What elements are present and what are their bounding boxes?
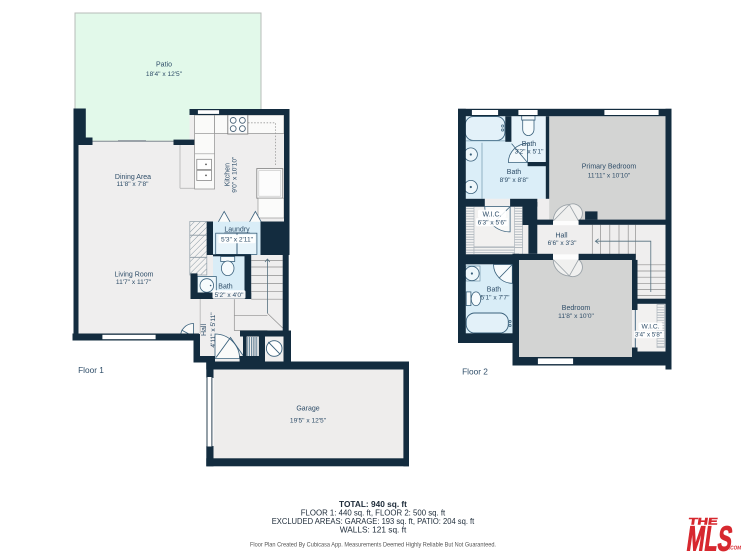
- svg-text:MLS: MLS: [685, 520, 735, 559]
- svg-text:4'11" x 5'11": 4'11" x 5'11": [210, 312, 217, 348]
- svg-text:W.I.C.: W.I.C.: [642, 324, 660, 331]
- svg-text:19'5" x 12'5": 19'5" x 12'5": [290, 418, 327, 425]
- svg-text:Hall: Hall: [201, 324, 208, 337]
- svg-text:Bath: Bath: [487, 287, 502, 294]
- svg-text:11'7" x 11'7": 11'7" x 11'7": [116, 279, 152, 286]
- svg-text:Primary Bedroom: Primary Bedroom: [582, 164, 637, 171]
- svg-text:Floor 1: Floor 1: [78, 365, 104, 375]
- svg-text:W.I.C.: W.I.C.: [482, 212, 501, 219]
- svg-text:Patio: Patio: [156, 62, 172, 69]
- svg-text:Laundry: Laundry: [224, 227, 250, 234]
- svg-text:6'3" x 5'6": 6'3" x 5'6": [478, 220, 507, 227]
- svg-text:Living Room: Living Room: [115, 272, 154, 279]
- svg-text:Hall: Hall: [555, 233, 568, 240]
- svg-text:6'6" x 3'3": 6'6" x 3'3": [548, 240, 577, 247]
- svg-text:Floor 2: Floor 2: [462, 367, 488, 377]
- svg-text:3'2" x 5'1": 3'2" x 5'1": [515, 149, 544, 156]
- svg-text:Floor Plan Created By Cubicasa: Floor Plan Created By Cubicasa App. Meas…: [250, 543, 496, 549]
- svg-text:WALLS: 121 sq. ft: WALLS: 121 sq. ft: [340, 524, 407, 534]
- svg-text:.COM: .COM: [728, 546, 741, 552]
- svg-text:18'4" x 12'5": 18'4" x 12'5": [146, 71, 183, 78]
- svg-text:Garage: Garage: [296, 406, 319, 413]
- svg-text:5'2" x 4'0": 5'2" x 4'0": [215, 292, 244, 299]
- svg-text:11'8" x 7'8": 11'8" x 7'8": [116, 181, 149, 188]
- svg-text:11'8" x 10'0": 11'8" x 10'0": [558, 313, 594, 320]
- svg-text:Bedroom: Bedroom: [562, 305, 591, 312]
- svg-text:3'4" x 5'8": 3'4" x 5'8": [635, 332, 662, 339]
- svg-text:8'9" x 8'8": 8'9" x 8'8": [500, 177, 529, 184]
- svg-text:11'11" x 10'10": 11'11" x 10'10": [588, 173, 631, 180]
- svg-text:5'1" x 7'7": 5'1" x 7'7": [481, 295, 510, 302]
- svg-text:Dining Area: Dining Area: [115, 174, 151, 181]
- svg-text:Bath: Bath: [507, 169, 522, 176]
- svg-text:Bath: Bath: [522, 141, 537, 148]
- svg-text:9'0" x 10'10": 9'0" x 10'10": [231, 156, 238, 193]
- svg-text:5'3" x 2'11": 5'3" x 2'11": [221, 236, 254, 243]
- svg-text:Bath: Bath: [218, 284, 233, 291]
